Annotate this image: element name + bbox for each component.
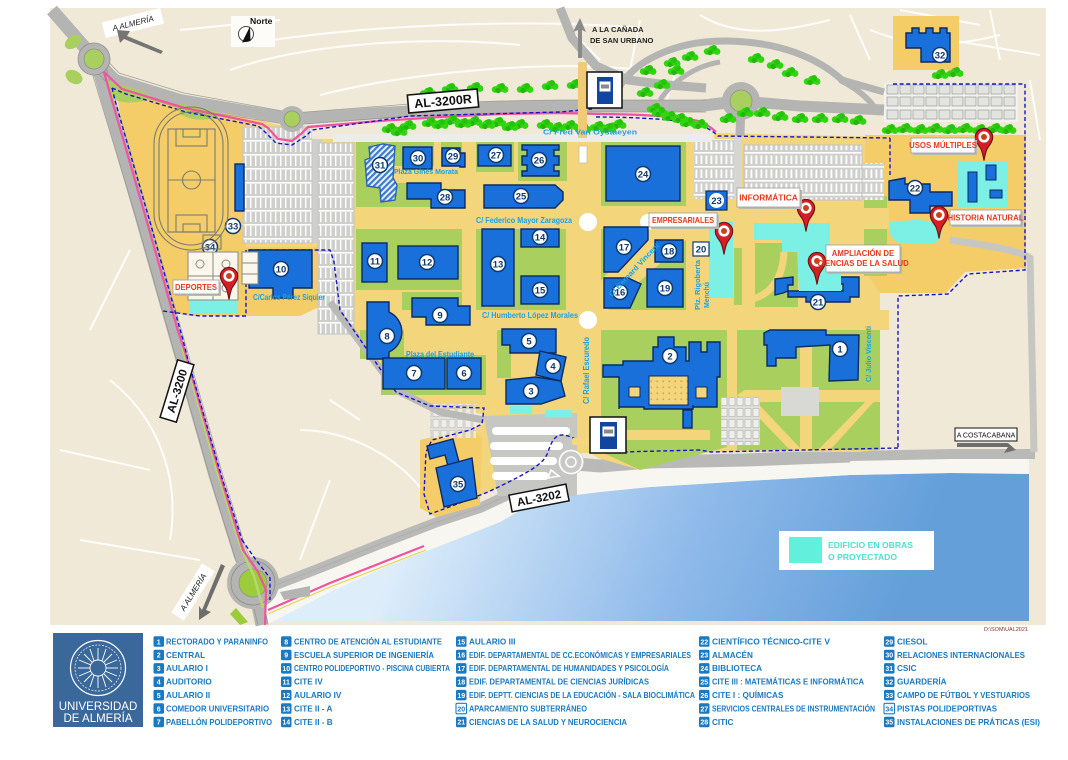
svg-text:29: 29 — [448, 152, 459, 163]
svg-text:2: 2 — [667, 352, 672, 363]
svg-text:32: 32 — [935, 51, 946, 62]
svg-text:SERVICIOS CENTRALES DE INSTRUM: SERVICIOS CENTRALES DE INSTRUMENTACIÓN — [712, 702, 875, 713]
svg-text:CIENCIAS DE LA SALUD Y NEUROCI: CIENCIAS DE LA SALUD Y NEUROCIENCIA — [469, 718, 627, 727]
svg-text:CENTRAL: CENTRAL — [166, 651, 205, 660]
svg-text:27: 27 — [491, 151, 502, 162]
svg-text:CENTRO DE ATENCIÓN AL ESTUDIAN: CENTRO DE ATENCIÓN AL ESTUDIANTE — [294, 635, 442, 646]
svg-text:23: 23 — [700, 653, 708, 660]
svg-text:15: 15 — [535, 286, 546, 297]
svg-text:33: 33 — [885, 693, 893, 700]
svg-text:24: 24 — [638, 170, 649, 181]
svg-text:PABELLÓN POLIDEPORTIVO: PABELLÓN POLIDEPORTIVO — [166, 716, 273, 727]
svg-text:32: 32 — [885, 680, 893, 687]
svg-text:CITE II - A: CITE II - A — [294, 704, 332, 713]
svg-text:Plaza del Estudiante: Plaza del Estudiante — [406, 350, 474, 359]
svg-text:UNIVERSIDAD: UNIVERSIDAD — [59, 701, 138, 713]
svg-text:O PROYECTADO: O PROYECTADO — [828, 552, 897, 562]
svg-text:30: 30 — [885, 653, 893, 660]
svg-text:2: 2 — [157, 653, 161, 660]
svg-text:CENTRO POLIDEPORTIVO - PISCINA: CENTRO POLIDEPORTIVO - PISCINA CUBIERTA — [294, 664, 450, 673]
svg-text:EDIF. DEPARTAMENTAL DE HUMANID: EDIF. DEPARTAMENTAL DE HUMANIDADES Y PSI… — [469, 663, 669, 673]
svg-text:17: 17 — [619, 243, 630, 254]
svg-text:7: 7 — [411, 369, 416, 380]
svg-text:30: 30 — [413, 154, 424, 165]
svg-text:25: 25 — [516, 192, 527, 203]
svg-text:AULARIO II: AULARIO II — [166, 691, 210, 700]
svg-text:CIENTÍFICO TÉCNICO-CITE V: CIENTÍFICO TÉCNICO-CITE V — [712, 636, 831, 646]
svg-text:C/ Humberto López Morales: C/ Humberto López Morales — [482, 311, 578, 320]
svg-text:RECTORADO Y PARANINFO: RECTORADO Y PARANINFO — [166, 637, 269, 646]
svg-text:AULARIO I: AULARIO I — [166, 664, 208, 673]
svg-text:CSIC: CSIC — [897, 664, 917, 673]
svg-text:Norte: Norte — [250, 16, 273, 26]
svg-text:19: 19 — [660, 284, 671, 295]
svg-text:CIENCIAS DE LA SALUD: CIENCIAS DE LA SALUD — [817, 259, 909, 268]
svg-text:11: 11 — [370, 257, 381, 268]
svg-text:3: 3 — [157, 666, 161, 673]
svg-text:EDIFICIO EN OBRAS: EDIFICIO EN OBRAS — [828, 540, 913, 550]
svg-text:DE SAN URBANO: DE SAN URBANO — [590, 36, 654, 45]
svg-text:EMPRESARIALES: EMPRESARIALES — [652, 215, 714, 225]
svg-text:31: 31 — [375, 161, 386, 172]
svg-text:HISTORIA NATURAL: HISTORIA NATURAL — [947, 214, 1023, 223]
svg-text:Plaza Ginés Morata: Plaza Ginés Morata — [394, 167, 459, 176]
svg-text:1: 1 — [837, 345, 843, 356]
svg-text:12: 12 — [282, 693, 290, 700]
svg-text:22: 22 — [700, 639, 708, 646]
svg-text:INSTALACIONES DE PRÁTICAS (ESI: INSTALACIONES DE PRÁTICAS (ESI) — [897, 717, 1040, 727]
svg-text:USOS MÚLTIPLES: USOS MÚLTIPLES — [909, 141, 977, 150]
svg-text:35: 35 — [885, 720, 893, 727]
svg-text:AULARIO III: AULARIO III — [469, 637, 515, 646]
svg-text:26: 26 — [700, 693, 708, 700]
svg-text:9: 9 — [284, 653, 288, 660]
svg-text:14: 14 — [282, 720, 290, 727]
svg-text:D:\SOM\UAL2021: D:\SOM\UAL2021 — [984, 627, 1028, 633]
svg-text:C/Carlos Pérez Siquier: C/Carlos Pérez Siquier — [253, 293, 325, 302]
svg-text:18: 18 — [457, 680, 465, 687]
svg-text:1: 1 — [157, 639, 161, 646]
svg-text:AUDITORIO: AUDITORIO — [166, 678, 212, 687]
svg-text:28: 28 — [700, 720, 708, 727]
svg-text:5: 5 — [157, 693, 161, 700]
svg-text:CIESOL: CIESOL — [897, 637, 927, 646]
svg-text:4: 4 — [157, 680, 161, 687]
svg-text:6: 6 — [461, 369, 466, 380]
svg-text:17: 17 — [457, 666, 465, 673]
svg-text:EDIF. DEPARTAMENTAL DE CIENCIA: EDIF. DEPARTAMENTAL DE CIENCIAS JURÍDICA… — [469, 677, 649, 687]
svg-text:22: 22 — [910, 184, 921, 195]
svg-text:4: 4 — [550, 362, 556, 373]
svg-text:PISTAS POLIDEPORTIVAS: PISTAS POLIDEPORTIVAS — [897, 704, 998, 713]
svg-text:CITE II - B: CITE II - B — [294, 718, 333, 727]
svg-text:11: 11 — [283, 680, 291, 687]
svg-text:A LA CAÑADA: A LA CAÑADA — [592, 25, 644, 34]
svg-text:Plz. Rigoberta: Plz. Rigoberta — [693, 259, 702, 310]
svg-text:ESCUELA SUPERIOR DE INGENIERÍA: ESCUELA SUPERIOR DE INGENIERÍA — [294, 650, 434, 660]
svg-text:28: 28 — [440, 193, 451, 204]
svg-text:29: 29 — [885, 639, 893, 646]
svg-text:10: 10 — [276, 265, 287, 276]
svg-text:8: 8 — [384, 332, 389, 343]
svg-text:DEPORTES: DEPORTES — [175, 282, 217, 292]
svg-text:BIBLIOTECA: BIBLIOTECA — [712, 664, 762, 673]
svg-text:Menchú: Menchú — [702, 282, 711, 308]
svg-text:35: 35 — [453, 480, 464, 491]
svg-text:26: 26 — [534, 156, 545, 167]
svg-text:24: 24 — [700, 666, 708, 673]
svg-text:EDIF. DEPARTAMENTAL DE CC.ECON: EDIF. DEPARTAMENTAL DE CC.ECONÓMICAS Y E… — [469, 649, 691, 660]
svg-text:EDIF. DEPTT. CIENCIAS DE LA ED: EDIF. DEPTT. CIENCIAS DE LA EDUCACIÓN - … — [469, 689, 695, 700]
svg-text:34: 34 — [885, 706, 893, 713]
svg-text:10: 10 — [282, 666, 290, 673]
svg-text:21: 21 — [457, 720, 465, 727]
svg-text:13: 13 — [282, 706, 290, 713]
svg-text:RELACIONES INTERNACIONALES: RELACIONES INTERNACIONALES — [897, 651, 1026, 660]
svg-text:CITE IV: CITE IV — [294, 678, 323, 687]
svg-text:7: 7 — [157, 720, 161, 727]
svg-text:33: 33 — [228, 222, 239, 233]
svg-text:AULARIO IV: AULARIO IV — [294, 691, 342, 700]
svg-text:3: 3 — [528, 387, 533, 398]
svg-text:ALMACÉN: ALMACÉN — [712, 650, 753, 660]
svg-text:25: 25 — [700, 680, 708, 687]
svg-text:31: 31 — [885, 666, 893, 673]
svg-text:27: 27 — [700, 706, 708, 713]
svg-text:C/ Julio Visconti: C/ Julio Visconti — [864, 326, 873, 382]
svg-text:C/ Federico Mayor Zaragoza: C/ Federico Mayor Zaragoza — [476, 216, 572, 225]
svg-text:C/ Fred Van Oystaeyen: C/ Fred Van Oystaeyen — [543, 128, 637, 137]
svg-text:INFORMÁTICA: INFORMÁTICA — [739, 192, 798, 203]
svg-text:21: 21 — [813, 298, 824, 309]
svg-text:CAMPO DE FÚTBOL Y VESTUARIOS: CAMPO DE FÚTBOL Y VESTUARIOS — [897, 689, 1031, 700]
svg-text:COMEDOR UNIVERSITARIO: COMEDOR UNIVERSITARIO — [166, 704, 270, 713]
svg-text:5: 5 — [526, 337, 532, 348]
svg-text:6: 6 — [157, 706, 161, 713]
svg-text:16: 16 — [457, 653, 465, 660]
svg-text:DE ALMERÍA: DE ALMERÍA — [63, 712, 132, 725]
svg-text:CITE III : MATEMÁTICAS E INFOR: CITE III : MATEMÁTICAS E INFORMÁTICA — [712, 677, 864, 687]
svg-text:C/ Rafael Escuredo: C/ Rafael Escuredo — [582, 337, 591, 404]
svg-text:APARCAMIENTO SUBTERRÁNEO: APARCAMIENTO SUBTERRÁNEO — [469, 703, 588, 713]
svg-text:18: 18 — [664, 247, 675, 258]
svg-text:GUARDERÍA: GUARDERÍA — [897, 677, 947, 687]
svg-text:20: 20 — [696, 245, 707, 256]
svg-text:23: 23 — [711, 196, 722, 207]
svg-text:13: 13 — [493, 260, 504, 271]
svg-text:20: 20 — [457, 706, 465, 713]
svg-text:8: 8 — [284, 639, 288, 646]
svg-text:9: 9 — [437, 311, 442, 322]
svg-text:A COSTACABANA: A COSTACABANA — [957, 433, 1016, 440]
svg-text:CITIC: CITIC — [712, 718, 733, 727]
svg-text:CITE I : QUÍMICAS: CITE I : QUÍMICAS — [712, 690, 784, 700]
svg-text:AMPLIACIÓN DE: AMPLIACIÓN DE — [832, 249, 894, 258]
svg-text:15: 15 — [457, 639, 465, 646]
svg-text:14: 14 — [535, 233, 546, 244]
svg-text:19: 19 — [457, 693, 465, 700]
svg-text:12: 12 — [422, 258, 433, 269]
